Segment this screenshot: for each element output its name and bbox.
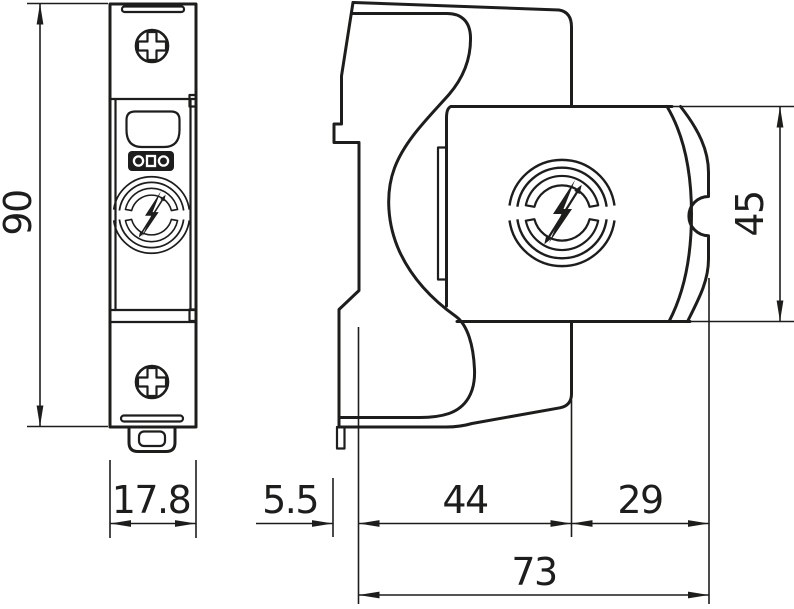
module-face-outer-arc [681,107,709,322]
technical-drawing-page: 90 17.8 5.5 44 [0,0,794,609]
front-bottom-slot [121,416,183,422]
dimension-label-90: 90 [0,190,40,235]
dim-rail-depth: 5.5 [256,478,333,537]
front-view [110,4,196,452]
surge-arrester-lightning-logo-icon [114,177,190,254]
dim-front-width: 17.8 [110,460,196,538]
dimensions: 90 17.8 5.5 44 [0,4,794,605]
dimension-label-73: 73 [511,550,556,594]
dimension-label-29: 29 [617,478,662,522]
surge-arrester-lightning-logo-icon [510,160,615,266]
phillips-screw-icon [136,30,168,62]
dim-module-depth: 29 [572,278,710,604]
dimension-label-45: 45 [728,191,772,236]
front-label-window [127,112,180,148]
dimension-drawing: 90 17.8 5.5 44 [0,0,794,609]
module-left-edge [447,107,452,307]
dimension-label-17.8: 17.8 [112,478,191,522]
dimension-label-44: 44 [442,478,488,522]
obo-brand-logo-icon [128,151,174,171]
dim-front-height: 90 [0,4,108,427]
dimension-label-5.5: 5.5 [262,478,318,522]
base-foot [337,427,345,449]
front-top-slot [122,7,184,13]
dim-total-depth: 73 [359,550,710,598]
din-release-tab-hole [139,432,165,447]
side-view [334,3,709,449]
base-rail-claw-profile [334,3,359,428]
phillips-screw-icon [136,366,168,398]
